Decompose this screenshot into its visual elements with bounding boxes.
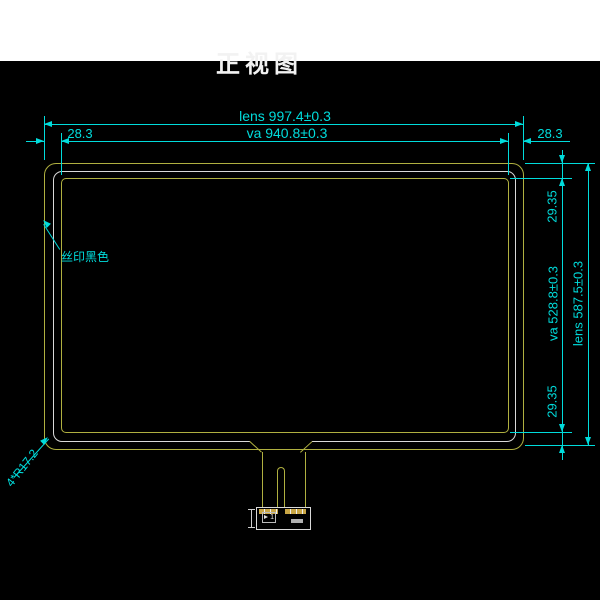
arrowhead (523, 138, 531, 144)
arrowhead (44, 121, 52, 127)
arrowhead (585, 437, 591, 445)
cad-drawing-viewport: 正视图 1 lens 997.4±0.3 va 940.8±0.3 28.3 2… (0, 0, 600, 600)
arrowhead (585, 163, 591, 171)
dim-text-va-width: va 940.8±0.3 (212, 125, 362, 141)
connector-height-dim-tick-top (248, 509, 255, 510)
arrowhead (559, 424, 565, 432)
dim-line-va-width (61, 141, 508, 142)
tail-slot (277, 467, 285, 509)
tail-gap-mask (250, 437, 312, 449)
connector-part-marking (291, 519, 303, 523)
connector-contacts-right (285, 509, 306, 514)
dim-text-left-margin: 28.3 (62, 126, 98, 141)
dim-text-right-margin: 28.3 (532, 126, 568, 141)
dim-text-top-margin: 29.35 (545, 177, 560, 237)
ext-line-va-right (508, 133, 509, 175)
va-outline (61, 178, 509, 433)
pin1-label: 1 (270, 514, 275, 521)
pin1-triangle-icon (264, 515, 270, 519)
tail-edge-left (262, 452, 263, 507)
dim-line-chain (562, 150, 563, 460)
dim-text-lens-width: lens 997.4±0.3 (210, 108, 360, 124)
connector-height-dim-tick-bottom (248, 527, 255, 528)
tail-edge-right (305, 452, 306, 507)
arrowhead (36, 138, 44, 144)
arrowhead (559, 178, 565, 186)
dim-text-bottom-margin: 29.35 (545, 372, 560, 432)
arrowhead (515, 121, 523, 127)
drawing-title: 正视图 (216, 53, 303, 77)
arrowhead (500, 138, 508, 144)
dim-text-lens-height: lens 587.5±0.3 (571, 249, 586, 359)
connector-height-dim-line (251, 509, 252, 528)
corner-radius-label: 4*R17.2 (0, 432, 52, 504)
arrowhead (559, 445, 565, 453)
arrowhead (559, 155, 565, 163)
pin1-marker-box: 1 (262, 512, 276, 523)
silk-print-label: 丝印黑色 (61, 248, 109, 265)
dim-text-va-height: va 528.8±0.3 (546, 249, 561, 359)
dim-line-lens-height (588, 163, 589, 445)
